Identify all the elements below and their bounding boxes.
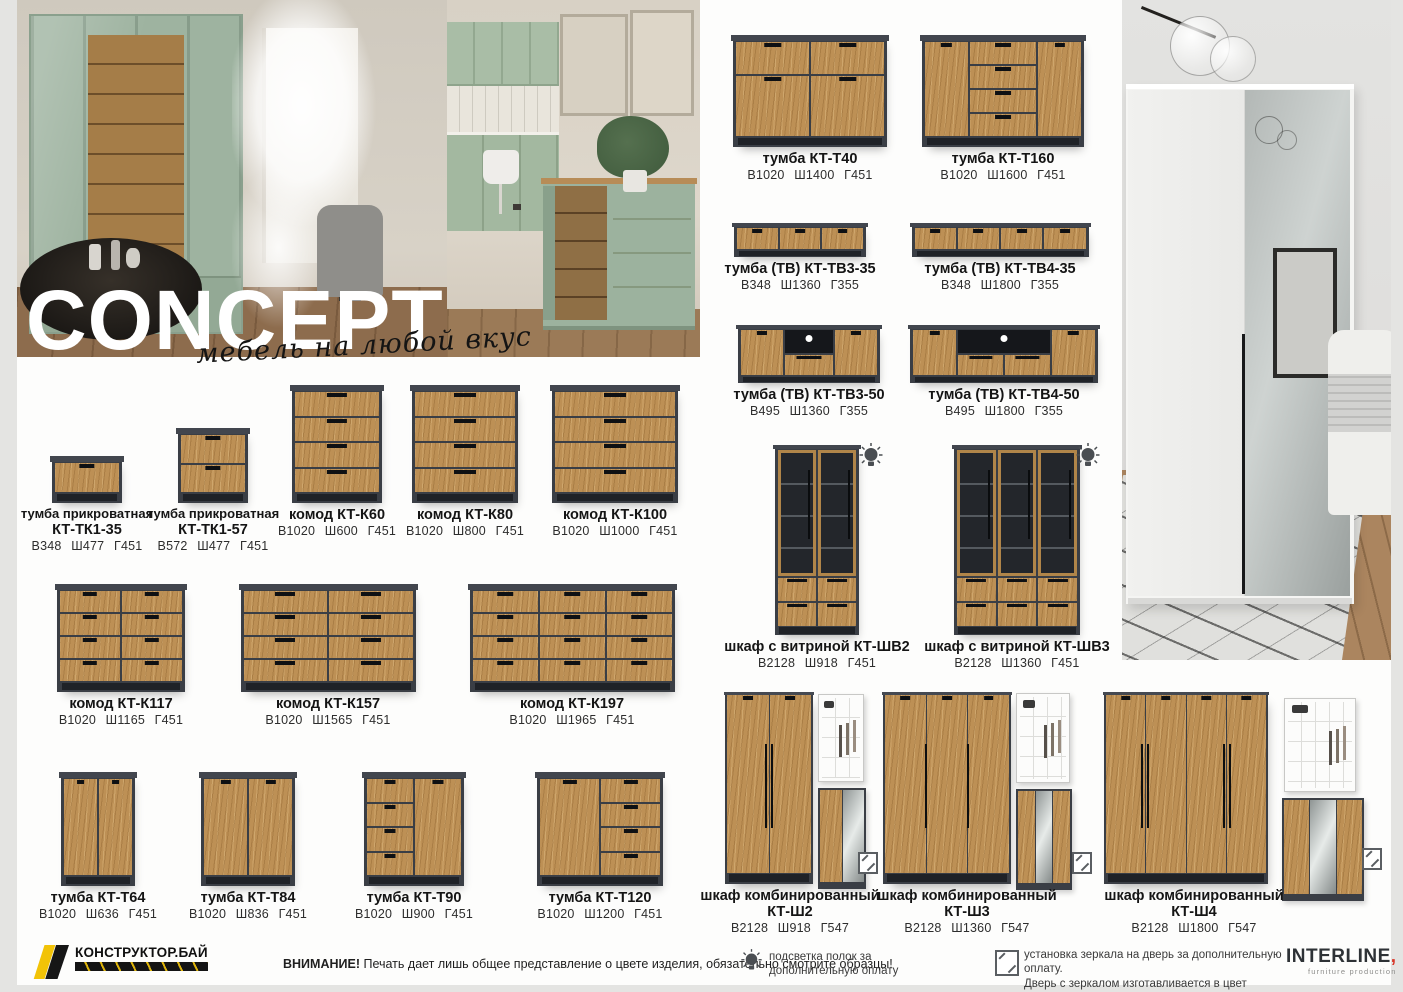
product-title: тумба КТ-Т40 bbox=[747, 151, 872, 167]
legend-mirror-line2: Дверь с зеркалом изготавливается в цвет … bbox=[1024, 977, 1282, 992]
product-title: комод КТ-К80 bbox=[406, 507, 524, 523]
product-image-kt-shv3 bbox=[954, 445, 1080, 635]
bulb-icon bbox=[1075, 442, 1101, 472]
product-dims: В495 Ш1360 Г355 bbox=[733, 404, 884, 418]
photo-backsplash bbox=[447, 86, 559, 132]
product-title: шкаф комбинированный bbox=[1104, 888, 1284, 904]
photo-green-dresser bbox=[543, 178, 695, 330]
legend-mirror-line1: установка зеркала на дверь за дополнител… bbox=[1024, 948, 1282, 977]
interline-logo-tagline: furniture production bbox=[1286, 967, 1397, 976]
product-code: КТ-Ш4 bbox=[1104, 904, 1284, 920]
thumb-open-wardrobe-sh2 bbox=[818, 694, 864, 782]
product-dims: В348 Ш1800 Г355 bbox=[924, 278, 1075, 292]
product-dims: В1020 Ш600 Г451 bbox=[278, 524, 396, 538]
product-dims: В2128 Ш1360 Г451 bbox=[924, 656, 1109, 670]
mirror-icon bbox=[995, 950, 1019, 976]
product-image-kt-tv4-35 bbox=[912, 223, 1089, 257]
product-title: тумба КТ-Т120 bbox=[537, 890, 662, 906]
product-title: тумба (ТВ) КТ-ТВ3-50 bbox=[733, 387, 884, 403]
product-title: шкаф с витриной КТ-ШВ2 bbox=[724, 639, 909, 655]
print-warning-bold: ВНИМАНИЕ! bbox=[283, 957, 360, 971]
product-title: тумба (ТВ) КТ-ТВ4-35 bbox=[924, 261, 1075, 277]
photo-wardrobe bbox=[1126, 84, 1354, 604]
product-dims: В1020 Ш1565 Г451 bbox=[265, 713, 390, 727]
konstruktor-logo: КОНСТРУКТОР.БАЙ bbox=[33, 945, 208, 979]
product-image-kt-k157 bbox=[241, 584, 416, 692]
product-card-kt-k197: комод КТ-К197 В1020 Ш1965 Г451 bbox=[487, 584, 657, 727]
legend-mirror: установка зеркала на дверь за дополнител… bbox=[1024, 948, 1282, 992]
product-dims: В2128 Ш1800 Г547 bbox=[1104, 921, 1284, 935]
product-title: тумба КТ-Т64 bbox=[39, 890, 157, 906]
product-title: комод КТ-К100 bbox=[552, 507, 677, 523]
photo-lamp bbox=[483, 150, 519, 184]
wardrobe-white-door bbox=[1128, 90, 1245, 596]
product-card-kt-t40: тумба КТ-Т40 В1020 Ш1400 Г451 bbox=[700, 35, 920, 182]
product-code: КТ-ТК1-57 bbox=[147, 522, 279, 538]
product-title: тумба прикроватная bbox=[147, 507, 279, 522]
product-dims: В2128 Ш918 Г451 bbox=[724, 656, 909, 670]
product-image-kt-tk1-35 bbox=[52, 456, 122, 503]
product-caption-kt-sh3: шкаф комбинированный КТ-Ш3 В2128 Ш1360 Г… bbox=[877, 888, 1057, 935]
product-card-kt-tv3-50: тумба (ТВ) КТ-ТВ3-50 В495 Ш1360 Г355 bbox=[699, 325, 919, 418]
product-title: комод КТ-К157 bbox=[265, 696, 390, 712]
product-card-kt-k157: комод КТ-К157 В1020 Ш1565 Г451 bbox=[243, 584, 413, 727]
product-dims: В1020 Ш836 Г451 bbox=[189, 907, 307, 921]
product-image-kt-t64 bbox=[61, 772, 135, 886]
product-dims: В1020 Ш1200 Г451 bbox=[537, 907, 662, 921]
product-image-kt-t160 bbox=[922, 35, 1084, 147]
product-code: КТ-Ш2 bbox=[700, 904, 880, 920]
product-image-kt-t40 bbox=[733, 35, 887, 147]
product-title: тумба КТ-Т84 bbox=[189, 890, 307, 906]
product-title: комод КТ-К60 bbox=[278, 507, 396, 523]
interline-logo-name: INTERLINE bbox=[1286, 946, 1391, 967]
product-dims: В495 Ш1800 Г355 bbox=[928, 404, 1079, 418]
product-card-kt-tv4-35: тумба (ТВ) КТ-ТВ4-35 В348 Ш1800 Г355 bbox=[890, 223, 1110, 292]
thumb-open-wardrobe-sh3 bbox=[1016, 693, 1070, 783]
product-card-kt-k117: комод КТ-К117 В1020 Ш1165 Г451 bbox=[36, 584, 206, 727]
product-dims: В1020 Ш1600 Г451 bbox=[940, 168, 1065, 182]
product-dims: В1020 Ш900 Г451 bbox=[355, 907, 473, 921]
product-title: комод КТ-К197 bbox=[509, 696, 634, 712]
product-image-kt-k117 bbox=[57, 584, 185, 692]
product-image-kt-shv2 bbox=[775, 445, 859, 635]
bulb-icon bbox=[858, 442, 884, 472]
product-title: тумба КТ-Т90 bbox=[355, 890, 473, 906]
product-code: КТ-ТК1-35 bbox=[21, 522, 153, 538]
product-title: шкаф комбинированный bbox=[700, 888, 880, 904]
thumb-mirror-wardrobe-sh4 bbox=[1282, 798, 1364, 901]
photo-pendant-bulb bbox=[1210, 36, 1256, 82]
product-image-kt-tk1-57 bbox=[178, 428, 248, 503]
legend-backlight: подсветка полок за дополнительную оплату bbox=[769, 950, 944, 979]
product-title: тумба (ТВ) КТ-ТВ3-35 bbox=[724, 261, 875, 277]
product-dims: В2128 Ш918 Г547 bbox=[700, 921, 880, 935]
interline-logo-mark: , bbox=[1391, 946, 1397, 967]
konstruktor-logo-bar bbox=[75, 962, 208, 971]
product-caption-kt-sh2: шкаф комбинированный КТ-Ш2 В2128 Ш918 Г5… bbox=[700, 888, 880, 935]
product-dims: В1020 Ш1965 Г451 bbox=[509, 713, 634, 727]
product-title: шкаф с витриной КТ-ШВ3 bbox=[924, 639, 1109, 655]
thumb-mirror-wardrobe-sh3 bbox=[1016, 789, 1072, 890]
product-caption-kt-sh4: шкаф комбинированный КТ-Ш4 В2128 Ш1800 Г… bbox=[1104, 888, 1284, 935]
product-card-kt-shv2: шкаф с витриной КТ-ШВ2 В2128 Ш918 Г451 bbox=[707, 445, 927, 670]
product-dims: В348 Ш1360 Г355 bbox=[724, 278, 875, 292]
mirror-icon bbox=[1072, 852, 1092, 874]
konstruktor-logo-mark bbox=[33, 945, 69, 979]
product-title: тумба КТ-Т160 bbox=[940, 151, 1065, 167]
product-image-kt-t84 bbox=[201, 772, 295, 886]
product-image-kt-k100 bbox=[552, 385, 678, 503]
product-card-kt-k100: комод КТ-К100 В1020 Ш1000 Г451 bbox=[540, 385, 690, 538]
product-image-kt-sh3 bbox=[883, 692, 1011, 884]
thumb-open-wardrobe-sh4 bbox=[1284, 698, 1356, 792]
product-title: тумба прикроватная bbox=[21, 507, 153, 522]
product-title: тумба (ТВ) КТ-ТВ4-50 bbox=[928, 387, 1079, 403]
product-card-kt-tv4-50: тумба (ТВ) КТ-ТВ4-50 В495 Ш1800 Г355 bbox=[894, 325, 1114, 418]
interline-logo: INTERLINE, furniture production bbox=[1286, 947, 1397, 976]
product-dims: В1020 Ш1000 Г451 bbox=[552, 524, 677, 538]
product-image-kt-k60 bbox=[292, 385, 382, 503]
product-dims: В1020 Ш1165 Г451 bbox=[59, 713, 183, 727]
photo-kitchen-upper-cabinets bbox=[447, 22, 559, 84]
product-dims: В1020 Ш1400 Г451 bbox=[747, 168, 872, 182]
product-image-kt-tv3-50 bbox=[738, 325, 880, 383]
konstruktor-logo-name: КОНСТРУКТОР.БАЙ bbox=[75, 945, 208, 960]
product-dims: В1020 Ш800 Г451 bbox=[406, 524, 524, 538]
product-image-kt-t90 bbox=[364, 772, 464, 886]
product-code: КТ-Ш3 bbox=[877, 904, 1057, 920]
product-image-kt-sh2 bbox=[725, 692, 813, 884]
product-image-kt-k197 bbox=[470, 584, 675, 692]
product-card-kt-shv3: шкаф с витриной КТ-ШВ3 В2128 Ш1360 Г451 bbox=[907, 445, 1127, 670]
mirror-icon bbox=[858, 852, 878, 874]
catalog-page: CONCEPT мебель на любой вкус bbox=[0, 0, 1403, 992]
bulb-icon bbox=[740, 948, 763, 975]
product-card-kt-t120: тумба КТ-Т120 В1020 Ш1200 Г451 bbox=[525, 772, 675, 921]
product-dims: В348 Ш477 Г451 bbox=[21, 539, 153, 553]
product-card-kt-t64: тумба КТ-Т64 В1020 Ш636 Г451 bbox=[23, 772, 173, 921]
product-dims: В1020 Ш636 Г451 bbox=[39, 907, 157, 921]
product-card-kt-t90: тумба КТ-Т90 В1020 Ш900 Г451 bbox=[339, 772, 489, 921]
photo-white-wardrobe-room bbox=[1122, 0, 1391, 660]
product-card-kt-tv3-35: тумба (ТВ) КТ-ТВ3-35 В348 Ш1360 Г355 bbox=[690, 223, 910, 292]
photo-art-frame bbox=[560, 14, 628, 116]
product-dims: В572 Ш477 Г451 bbox=[147, 539, 279, 553]
product-card-kt-k80: комод КТ-К80 В1020 Ш800 Г451 bbox=[390, 385, 540, 538]
product-title: шкаф комбинированный bbox=[877, 888, 1057, 904]
product-image-kt-k80 bbox=[412, 385, 518, 503]
product-card-kt-t84: тумба КТ-Т84 В1020 Ш836 Г451 bbox=[173, 772, 323, 921]
product-title: комод КТ-К117 bbox=[59, 696, 183, 712]
product-image-kt-sh4 bbox=[1104, 692, 1268, 884]
product-image-kt-t120 bbox=[537, 772, 663, 886]
product-image-kt-tv4-50 bbox=[910, 325, 1098, 383]
mirror-icon bbox=[1362, 848, 1382, 870]
product-image-kt-tv3-35 bbox=[734, 223, 866, 257]
photo-kitchen-dresser bbox=[447, 0, 700, 357]
product-dims: В2128 Ш1360 Г547 bbox=[877, 921, 1057, 935]
product-card-kt-t160: тумба КТ-Т160 В1020 Ш1600 Г451 bbox=[893, 35, 1113, 182]
photo-art-frame bbox=[630, 10, 694, 116]
photo-armchair bbox=[1328, 330, 1391, 515]
photo-plant bbox=[597, 116, 669, 178]
